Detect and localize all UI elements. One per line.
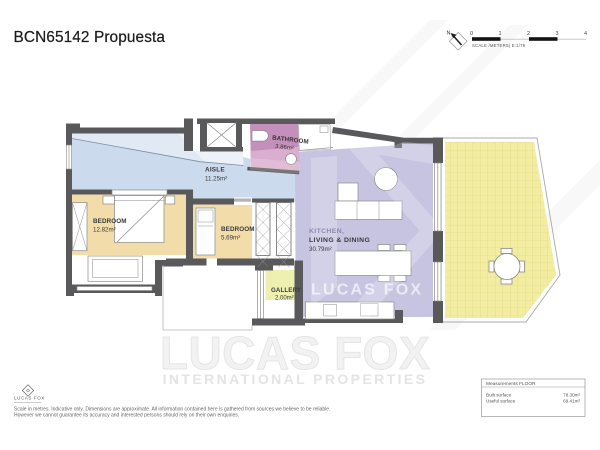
svg-text:2.00m²: 2.00m² <box>275 296 294 302</box>
svg-text:BEDROOM: BEDROOM <box>221 226 255 233</box>
svg-text:Built surface: Built surface <box>486 393 512 398</box>
svg-text:Measurements FLOOR: Measurements FLOOR <box>486 381 536 387</box>
svg-text:12.82m²: 12.82m² <box>93 227 116 234</box>
svg-text:AISLE: AISLE <box>205 167 225 174</box>
svg-text:3: 3 <box>556 31 559 37</box>
svg-text:0: 0 <box>470 31 473 37</box>
svg-text:BCN65142 Propuesta: BCN65142 Propuesta <box>14 29 166 46</box>
svg-text:GALLERY: GALLERY <box>271 287 302 294</box>
svg-text:5.69m²: 5.69m² <box>221 235 240 242</box>
svg-text:KITCHEN,: KITCHEN, <box>309 228 344 235</box>
svg-text:2: 2 <box>527 31 530 37</box>
svg-text:However we cannot guarantee it: However we cannot guarantee its accuracy… <box>14 412 239 418</box>
svg-text:78.30m²: 78.30m² <box>563 393 580 398</box>
svg-text:LUCAS FOX: LUCAS FOX <box>14 396 45 401</box>
svg-text:1: 1 <box>499 31 502 37</box>
svg-text:SCALE /METERS| E:1/75: SCALE /METERS| E:1/75 <box>472 43 526 48</box>
svg-text:N: N <box>447 31 451 37</box>
svg-text:30.79m²: 30.79m² <box>309 246 332 253</box>
svg-text:BEDROOM: BEDROOM <box>93 218 127 225</box>
svg-text:LIVING & DINING: LIVING & DINING <box>309 237 370 244</box>
svg-text:4: 4 <box>584 31 587 37</box>
svg-text:69.41m²: 69.41m² <box>563 399 580 404</box>
svg-text:Useful surface: Useful surface <box>486 399 516 404</box>
svg-text:INTERNATIONAL PROPERTIES: INTERNATIONAL PROPERTIES <box>163 371 428 387</box>
svg-text:LUCAS FOX: LUCAS FOX <box>311 282 423 299</box>
svg-text:11.25m²: 11.25m² <box>205 176 227 183</box>
